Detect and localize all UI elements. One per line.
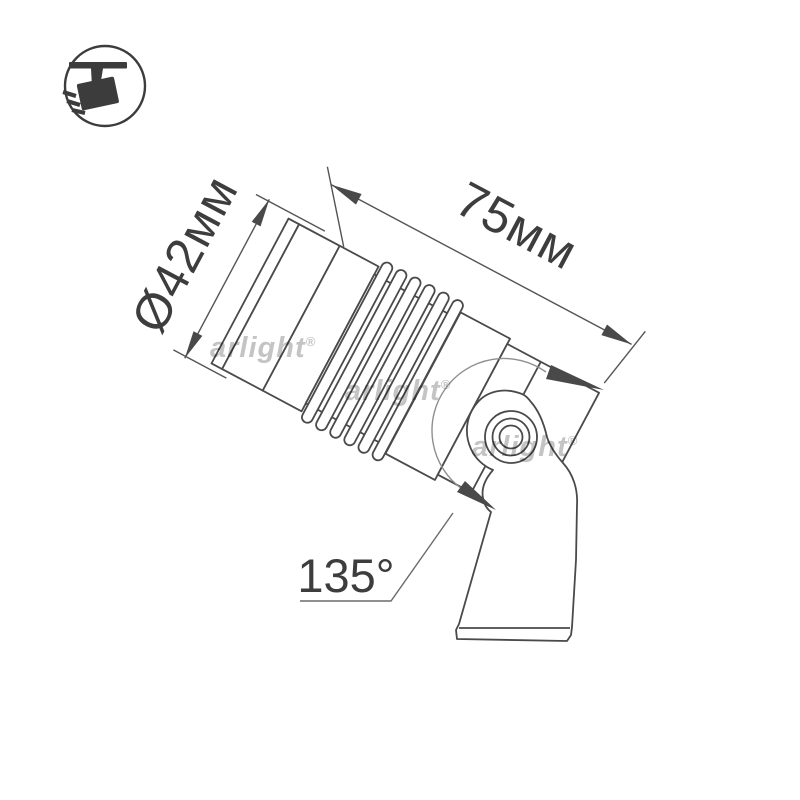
screenshot-canvas: Ø42мм 75мм 135° [0, 0, 800, 800]
ceiling-spotlight-badge [63, 46, 145, 126]
diameter-arrowhead-bottom [180, 331, 202, 360]
watermark-text: arlight® [472, 431, 578, 463]
watermark-text: arlight® [345, 375, 451, 407]
length-dimension-label: 75мм [447, 171, 587, 281]
track-bar [69, 62, 127, 69]
length-arrowhead-right [601, 325, 634, 350]
spotlight-dimension-drawing: Ø42мм 75мм 135° [0, 0, 800, 800]
lamp-body-group: Ø42мм 75мм [117, 56, 674, 543]
diameter-dimension-label: Ø42мм [120, 167, 248, 342]
track-spotlight-icon [63, 62, 127, 113]
light-ray [72, 110, 85, 113]
length-arrowhead-left [329, 179, 362, 204]
watermark-text: arlight® [210, 332, 316, 364]
spotlight-head [77, 76, 120, 110]
rotation-angle-label: 135° [297, 549, 394, 602]
diameter-arrowhead-top [252, 197, 274, 226]
